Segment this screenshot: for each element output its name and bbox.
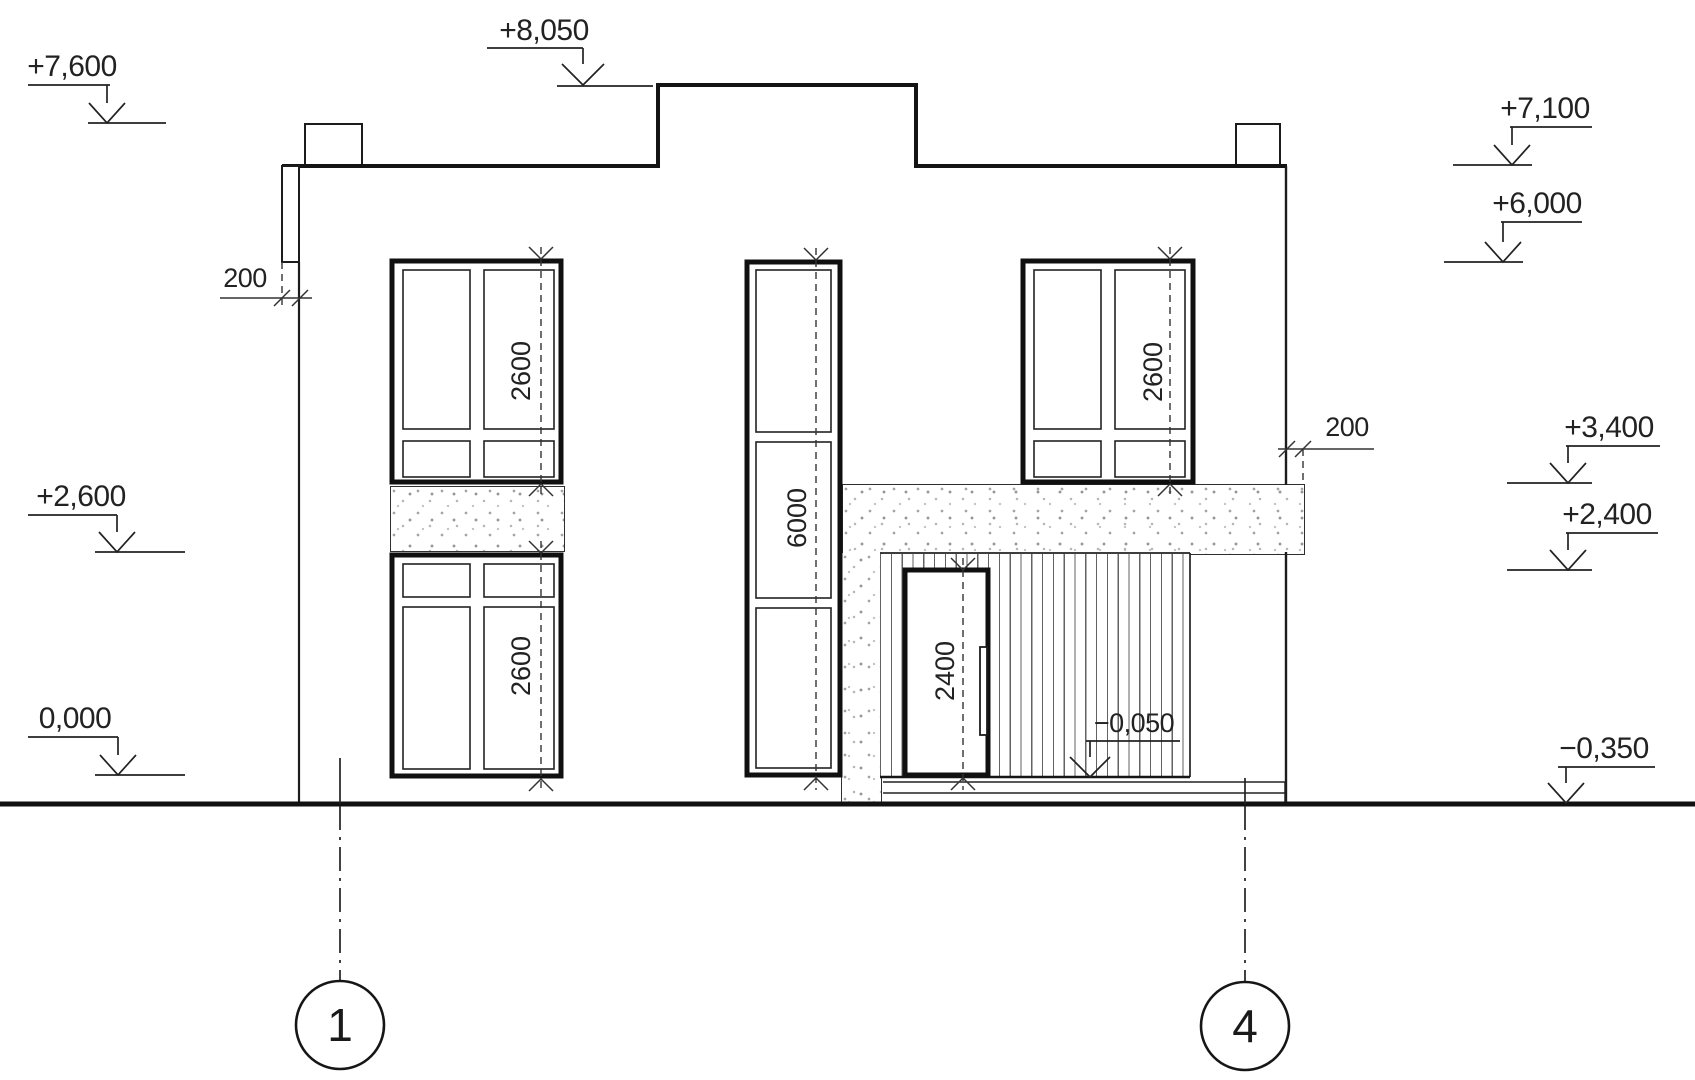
grid-axis-label-1: 1 [296, 1001, 384, 1049]
chimney-right [1236, 124, 1280, 167]
level-marker-2600-symbol [28, 515, 185, 552]
level-label-minus0050: −0,050 [1086, 708, 1182, 739]
elevation-linework [0, 0, 1695, 1080]
dim-label-window-upper-left: 2600 [506, 306, 536, 436]
level-marker-minus0050-symbol [1070, 741, 1180, 777]
level-marker-0000-symbol [28, 737, 185, 775]
parapet-edge-left [282, 166, 299, 262]
level-label-8050: +8,050 [492, 14, 596, 48]
level-marker-3400-symbol [1507, 446, 1660, 483]
level-label-minus0350: −0,350 [1553, 732, 1655, 766]
entry-steps [880, 777, 1285, 803]
dim-label-beam-200: 200 [1315, 412, 1379, 443]
level-marker-2400-symbol [1507, 533, 1658, 570]
level-marker-minus0350-symbol [1548, 767, 1655, 803]
level-label-3400: +3,400 [1559, 411, 1659, 445]
chimney-left [305, 124, 362, 166]
facade-elevation-drawing: +7,600 +2,600 0,000 +8,050 +7,100 +6,000… [0, 0, 1695, 1080]
level-label-6000: +6,000 [1491, 187, 1583, 221]
level-label-2400: +2,400 [1557, 498, 1657, 532]
level-label-7100: +7,100 [1499, 92, 1591, 126]
dim-label-window-lower-left: 2600 [506, 601, 536, 731]
dim-label-window-center: 6000 [782, 453, 812, 583]
grid-axis-label-4: 4 [1201, 1002, 1289, 1050]
level-marker-6000-symbol [1444, 222, 1582, 262]
level-label-2600: +2,600 [29, 480, 133, 514]
dim-label-door: 2400 [930, 606, 960, 736]
roof-parapet-outline [282, 85, 1287, 262]
level-label-0000: 0,000 [28, 702, 122, 736]
dim-label-parapet-200: 200 [213, 263, 277, 294]
level-marker-7100-symbol [1453, 127, 1592, 165]
door-handle [980, 647, 987, 735]
level-marker-7600-symbol [28, 85, 166, 123]
dim-label-window-right: 2600 [1138, 307, 1168, 437]
level-label-7600: +7,600 [24, 50, 120, 84]
level-marker-8050-symbol [487, 48, 653, 86]
